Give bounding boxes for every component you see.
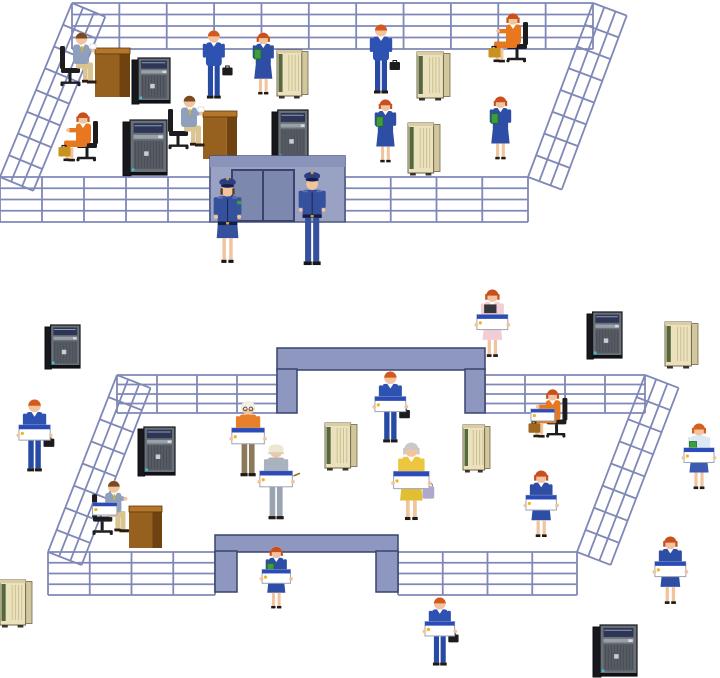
server-tower-2 bbox=[123, 120, 167, 176]
server-tower-6 bbox=[138, 427, 175, 476]
laptop-businessman-outside-left bbox=[16, 400, 54, 472]
businessman-standing-1 bbox=[203, 30, 233, 98]
mainframe-5 bbox=[325, 423, 357, 471]
businesswoman-folder-1 bbox=[253, 32, 274, 94]
server-tower-7 bbox=[593, 625, 637, 677]
scene-svg bbox=[0, 0, 720, 678]
businesswoman-folder-2 bbox=[375, 99, 396, 162]
nurse-pink-laptop bbox=[474, 290, 510, 357]
laptop-businessman-outside-bottom bbox=[423, 597, 459, 665]
clerk-at-desk-2 bbox=[168, 96, 204, 150]
businesswoman-laptop-outside-right bbox=[652, 537, 688, 604]
arch-gate-front bbox=[215, 535, 398, 592]
mainframe-2 bbox=[417, 52, 450, 101]
mainframe-4 bbox=[665, 322, 698, 369]
security-zones-illustration bbox=[0, 0, 720, 678]
server-tower-5 bbox=[587, 312, 622, 359]
desk-1 bbox=[95, 48, 130, 97]
fence-upper-right-slant bbox=[528, 3, 627, 190]
mainframe-7 bbox=[0, 580, 32, 628]
desk-3 bbox=[129, 506, 162, 548]
fence-upper-left-slant bbox=[0, 3, 105, 191]
clerk-at-desk-1 bbox=[60, 33, 96, 87]
fence-upper-front-left bbox=[0, 177, 210, 222]
desk-2 bbox=[203, 111, 237, 159]
worker-helmet-laptop bbox=[257, 444, 300, 519]
mainframe-3 bbox=[408, 123, 440, 176]
elderly-woman-yellow-laptop bbox=[391, 443, 434, 520]
businesswoman-orange-seated-1 bbox=[59, 112, 99, 161]
businesswoman-laptop-inside bbox=[523, 471, 558, 538]
server-tower-3 bbox=[272, 110, 308, 162]
fence-lower-front-right bbox=[398, 552, 577, 595]
businessman-standing-2 bbox=[370, 25, 400, 94]
mainframe-6 bbox=[463, 425, 490, 473]
server-tower-4 bbox=[45, 325, 80, 369]
fence-lower-front-left bbox=[48, 552, 215, 595]
businesswoman-laptop-front-gate bbox=[260, 546, 293, 608]
mainframe-1 bbox=[277, 50, 308, 99]
server-tower-1 bbox=[132, 58, 170, 104]
laptop-businessman-inner-gate bbox=[372, 372, 409, 443]
businesswoman-folder-3 bbox=[490, 96, 511, 159]
labcoat-woman-laptop bbox=[682, 424, 717, 490]
fence-upper-front-right bbox=[345, 177, 528, 222]
